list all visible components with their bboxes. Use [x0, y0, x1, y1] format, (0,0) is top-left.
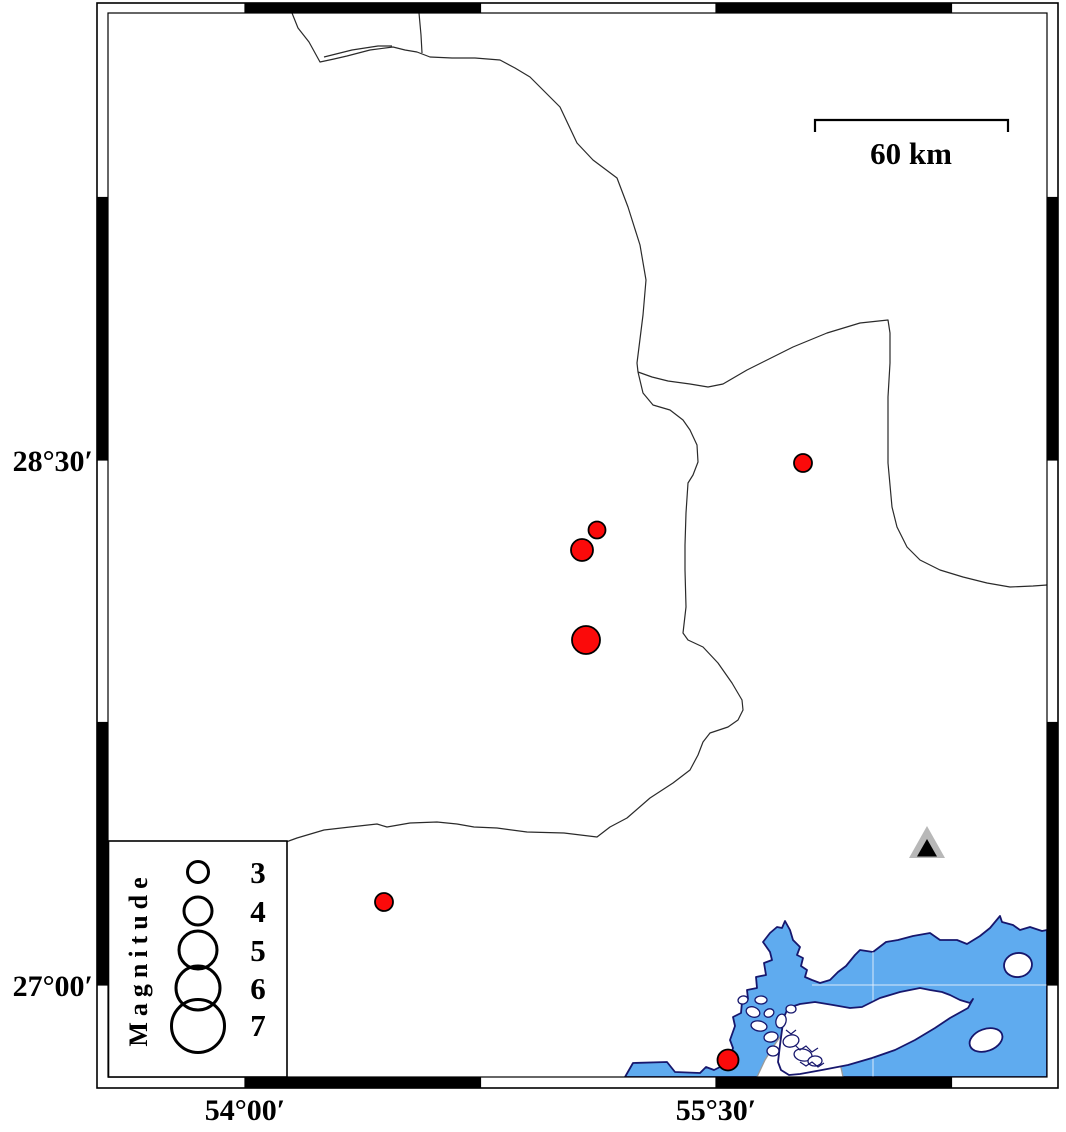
earthquake-marker — [589, 522, 606, 539]
earthquake-marker — [572, 626, 600, 654]
boundary-line — [638, 320, 1047, 587]
lon-label-55-30: 55°30′ — [676, 1094, 756, 1127]
marsh-islet — [767, 1046, 779, 1056]
marsh-islet — [755, 996, 767, 1004]
marsh-islet — [786, 1005, 796, 1013]
frame-segment-top — [245, 3, 481, 13]
frame-segment-left — [97, 723, 108, 986]
frame-segment-right — [1047, 723, 1058, 986]
legend-value-5: 5 — [250, 933, 266, 968]
frame-segment-bottom — [245, 1077, 481, 1088]
scale-bar-bracket — [815, 120, 1008, 132]
lat-label-27-00: 27°00′ — [13, 970, 93, 1003]
lon-label-54-00: 54°00′ — [205, 1094, 285, 1127]
legend-value-7: 7 — [250, 1008, 266, 1043]
map-figure: 60 km 28°30′ 27°00′ 54°00′ 55°30′ Magnit… — [0, 0, 1066, 1127]
scale-bar-label: 60 km — [870, 136, 952, 171]
boundary-line — [324, 46, 392, 57]
legend-value-4: 4 — [250, 894, 266, 929]
boundary-line — [292, 13, 646, 372]
station-triangle-marker — [909, 826, 945, 858]
earthquake-markers — [375, 454, 812, 1071]
map-content — [286, 13, 1047, 1077]
legend-title: Magnitude — [124, 871, 153, 1046]
earthquake-marker — [375, 893, 393, 911]
frame-segment-left — [97, 198, 108, 461]
magnitude-legend: Magnitude 3 4 5 6 7 — [109, 841, 288, 1077]
boundary-line — [419, 13, 422, 53]
earthquake-marker — [571, 539, 593, 561]
earthquake-marker — [794, 454, 812, 472]
earthquake-marker — [718, 1050, 739, 1071]
frame-segment-bottom — [716, 1077, 952, 1088]
lat-label-28-30: 28°30′ — [13, 445, 93, 478]
frame-segment-top — [716, 3, 952, 13]
scale-bar: 60 km — [815, 120, 1008, 171]
sea-area — [625, 916, 1047, 1077]
legend-value-6: 6 — [250, 971, 266, 1006]
boundary-line — [286, 372, 743, 842]
legend-value-3: 3 — [250, 855, 266, 890]
frame-segment-right — [1047, 198, 1058, 461]
